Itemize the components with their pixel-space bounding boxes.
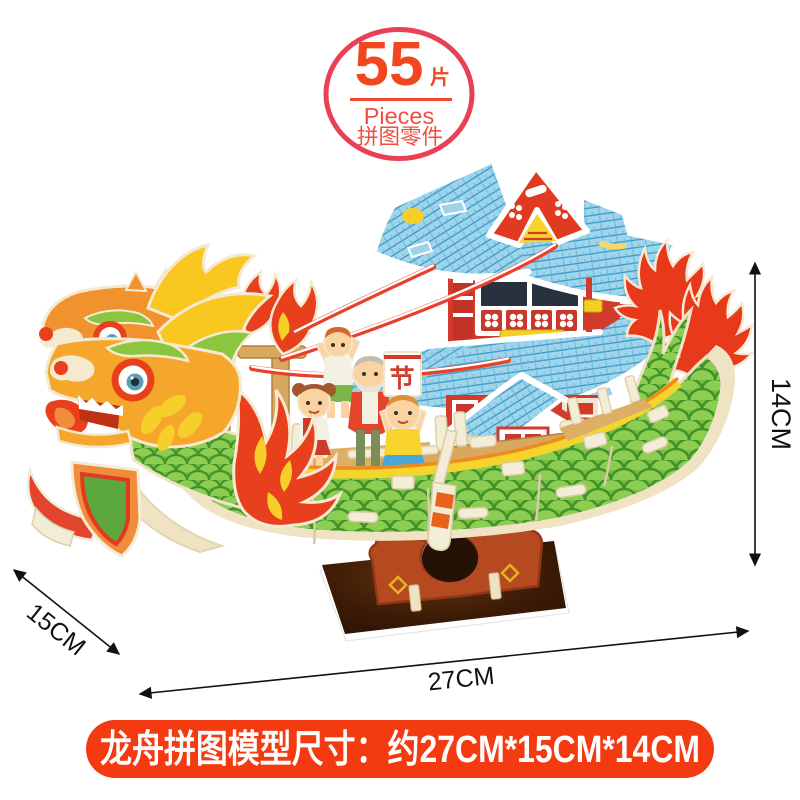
svg-text:节: 节	[389, 364, 414, 393]
svg-text:龙舟拼图模型尺寸：约27CM*15CM*14CM: 龙舟拼图模型尺寸：约27CM*15CM*14CM	[100, 729, 700, 771]
svg-text:片: 片	[430, 66, 450, 89]
svg-text:14CM: 14CM	[766, 378, 796, 450]
svg-text:55: 55	[355, 30, 424, 99]
svg-text:拼图零件: 拼图零件	[357, 125, 443, 149]
